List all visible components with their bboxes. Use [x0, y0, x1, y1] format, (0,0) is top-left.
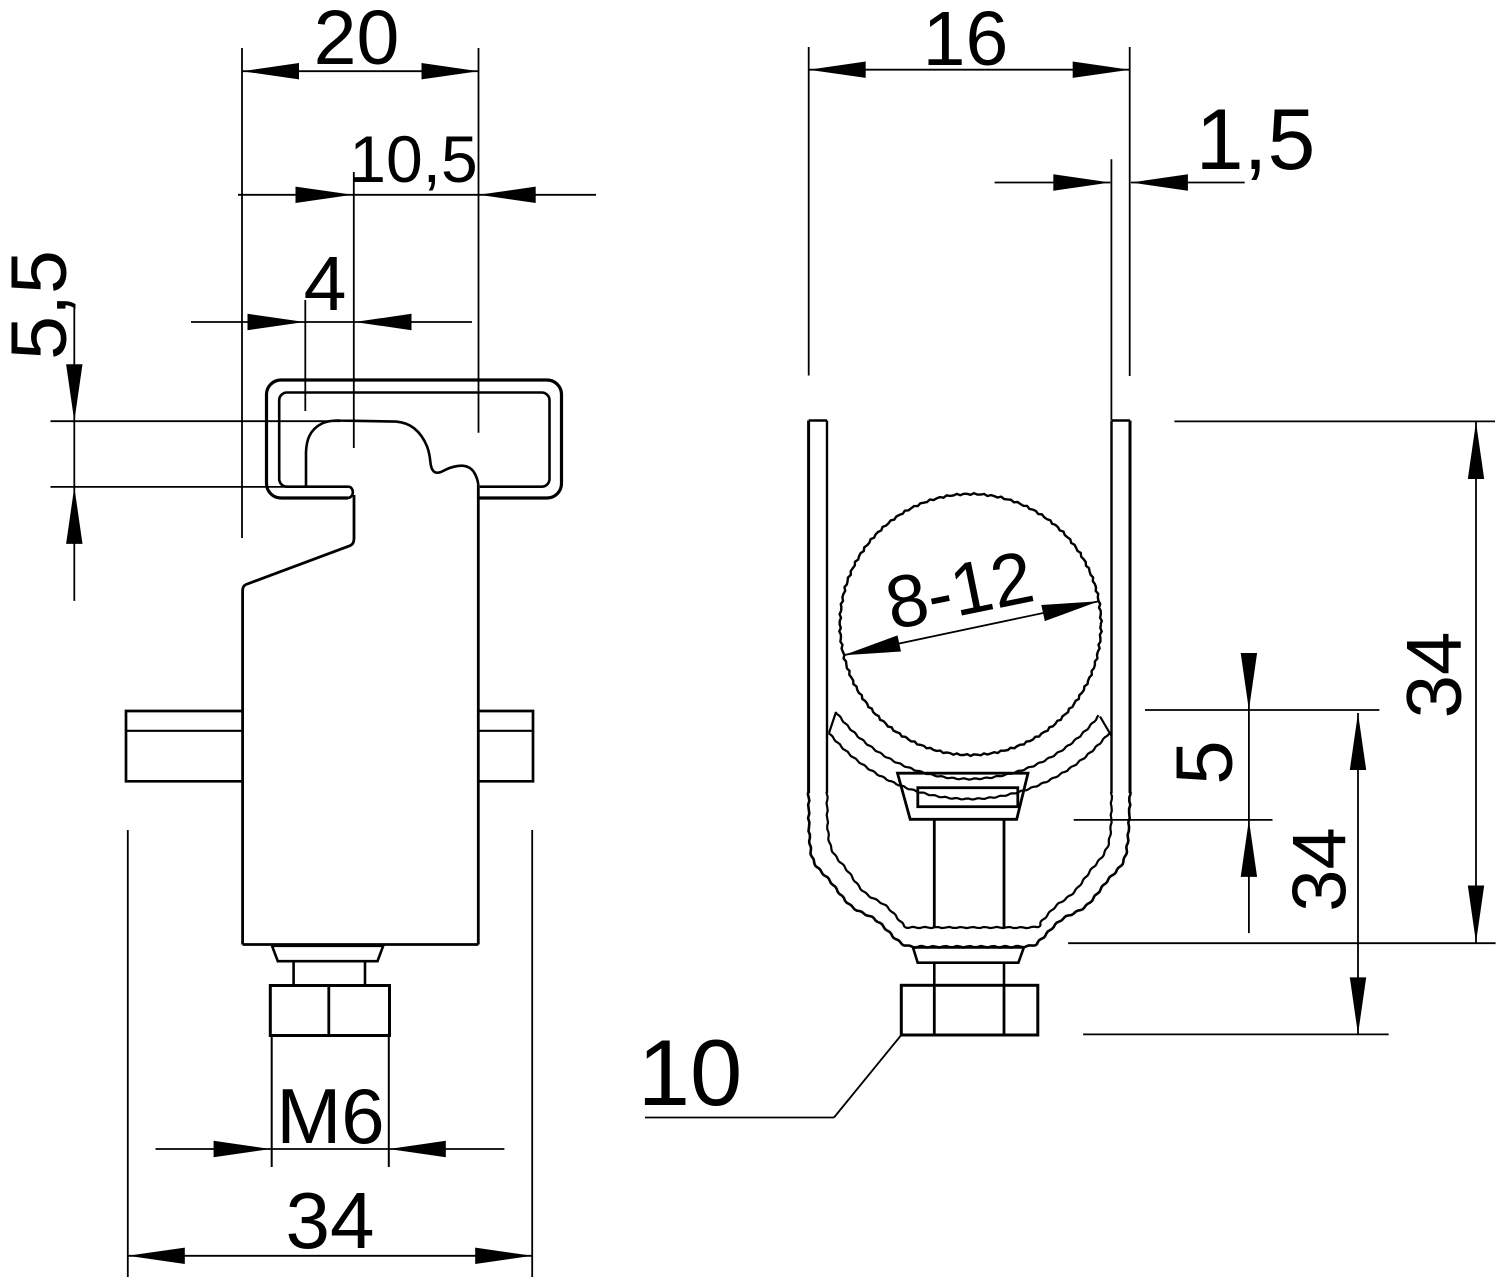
svg-text:34: 34 [1278, 827, 1363, 912]
svg-text:34: 34 [1390, 632, 1478, 719]
svg-text:10: 10 [638, 1020, 743, 1125]
svg-text:M6: M6 [276, 1072, 384, 1160]
svg-text:4: 4 [304, 241, 347, 327]
svg-text:5: 5 [1160, 740, 1249, 785]
svg-text:34: 34 [286, 1176, 375, 1265]
svg-text:20: 20 [314, 0, 400, 81]
svg-text:16: 16 [923, 0, 1009, 82]
svg-text:10,5: 10,5 [349, 122, 477, 196]
svg-text:1,5: 1,5 [1196, 92, 1316, 188]
svg-text:5,5: 5,5 [0, 250, 83, 360]
